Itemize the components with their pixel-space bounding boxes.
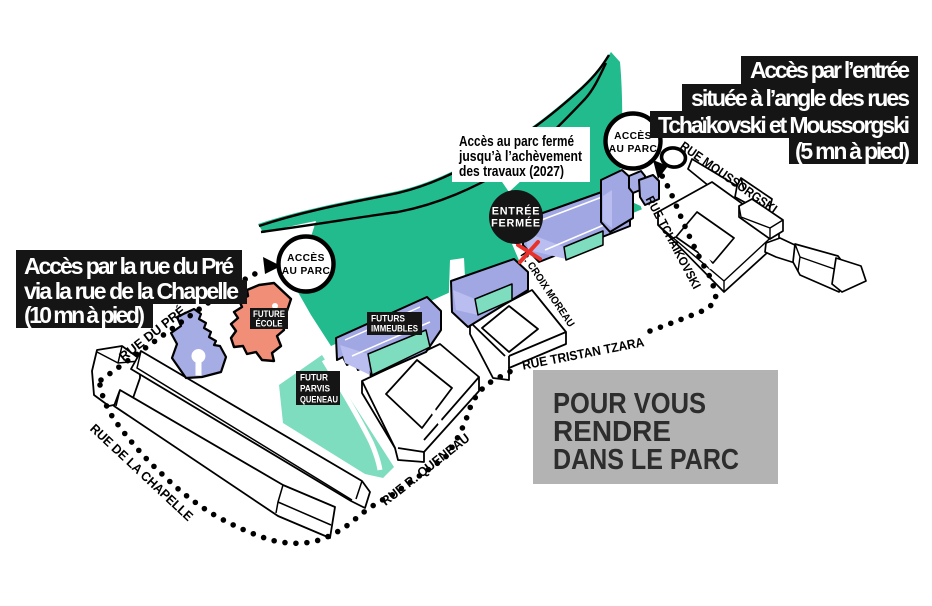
svg-text:AU PARC: AU PARC: [609, 144, 658, 155]
svg-text:(10 mn à pied): (10 mn à pied): [24, 302, 145, 328]
svg-text:PARVIS: PARVIS: [300, 384, 330, 394]
svg-text:ENTRÉE: ENTRÉE: [492, 205, 541, 218]
svg-text:des travaux (2027): des travaux (2027): [459, 163, 564, 180]
svg-text:ACCÈS: ACCÈS: [614, 129, 652, 142]
svg-text:FUTUR: FUTUR: [300, 373, 328, 383]
svg-text:via la rue de la Chapelle: via la rue de la Chapelle: [24, 278, 239, 304]
svg-text:Tchaïkovski et Moussorgski: Tchaïkovski et Moussorgski: [658, 112, 910, 138]
svg-text:QUENEAU: QUENEAU: [300, 395, 338, 405]
svg-text:ACCÈS: ACCÈS: [287, 251, 325, 264]
svg-text:FERMÉE: FERMÉE: [491, 217, 541, 230]
svg-text:FUTURE: FUTURE: [253, 309, 285, 319]
svg-text:DANS LE PARC: DANS LE PARC: [553, 444, 739, 476]
svg-text:(5 mn à pied): (5 mn à pied): [795, 138, 910, 164]
svg-text:AU PARC: AU PARC: [282, 266, 331, 277]
svg-text:située à l’angle des rues: située à l’angle des rues: [691, 85, 910, 111]
svg-text:ÉCOLE: ÉCOLE: [256, 319, 283, 329]
svg-text:IMMEUBLES: IMMEUBLES: [371, 324, 418, 334]
svg-text:Accès par l’entrée: Accès par l’entrée: [750, 57, 910, 83]
svg-text:FUTURS: FUTURS: [371, 314, 405, 324]
svg-text:Accès par la rue du Pré: Accès par la rue du Pré: [24, 253, 234, 279]
